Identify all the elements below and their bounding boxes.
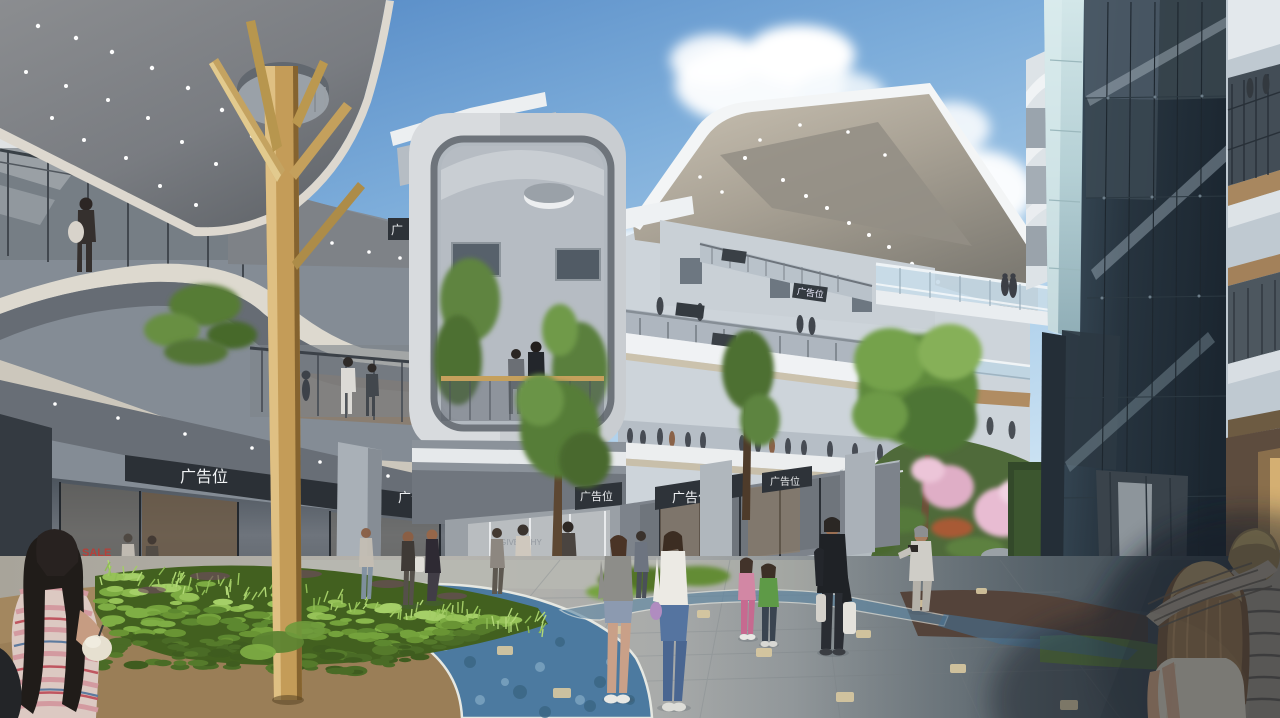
svg-text:广告位: 广告位 xyxy=(770,475,800,488)
svg-text:广: 广 xyxy=(391,223,403,237)
svg-text:广告位: 广告位 xyxy=(580,489,613,503)
svg-text:广告位: 广告位 xyxy=(180,468,228,486)
